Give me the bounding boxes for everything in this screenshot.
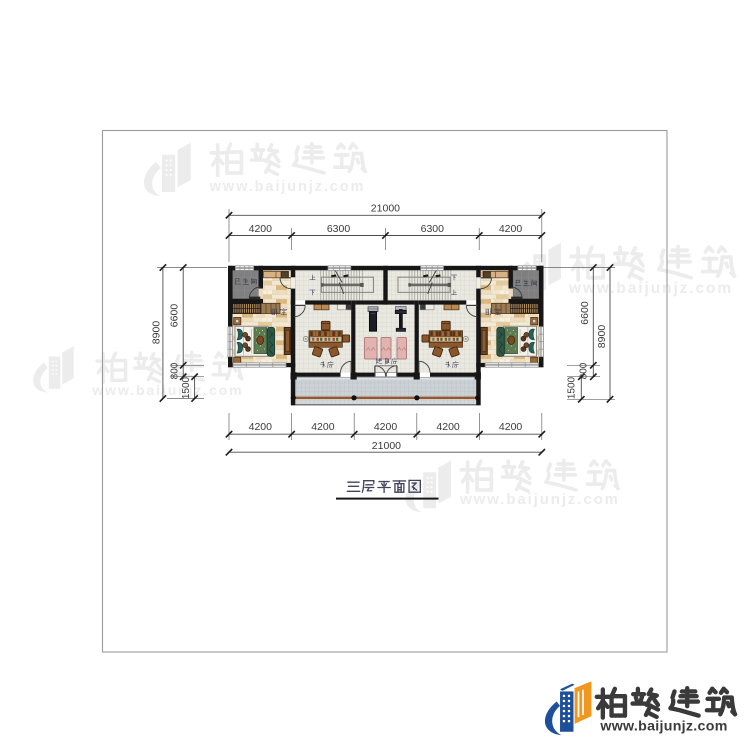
svg-text:6600: 6600 [579, 301, 591, 325]
svg-text:www.baijunjz.com: www.baijunjz.com [209, 179, 366, 195]
svg-text:6300: 6300 [421, 223, 445, 235]
svg-text:4200: 4200 [374, 421, 398, 433]
svg-text:1500: 1500 [181, 376, 192, 399]
svg-text:4200: 4200 [311, 421, 335, 433]
svg-text:800: 800 [170, 362, 181, 379]
svg-text:www.baijunjz.com: www.baijunjz.com [459, 491, 620, 508]
svg-text:4200: 4200 [499, 421, 523, 433]
svg-text:8900: 8900 [596, 325, 608, 349]
svg-text:4200: 4200 [499, 223, 523, 235]
svg-text:21000: 21000 [371, 203, 400, 215]
svg-text:www.baijunjz.com: www.baijunjz.com [568, 280, 733, 297]
svg-text:4200: 4200 [249, 223, 273, 235]
svg-text:8900: 8900 [151, 321, 163, 345]
svg-text:1500: 1500 [567, 376, 578, 399]
svg-text:800: 800 [579, 362, 590, 379]
svg-text:21000: 21000 [372, 440, 401, 452]
svg-text:6300: 6300 [327, 223, 351, 235]
svg-text:6600: 6600 [169, 304, 181, 328]
svg-text:4200: 4200 [249, 421, 273, 433]
svg-text:www.baijunjz.com: www.baijunjz.com [599, 719, 727, 735]
svg-text:4200: 4200 [436, 421, 460, 433]
svg-text:www.baijunjz.com: www.baijunjz.com [91, 382, 243, 398]
